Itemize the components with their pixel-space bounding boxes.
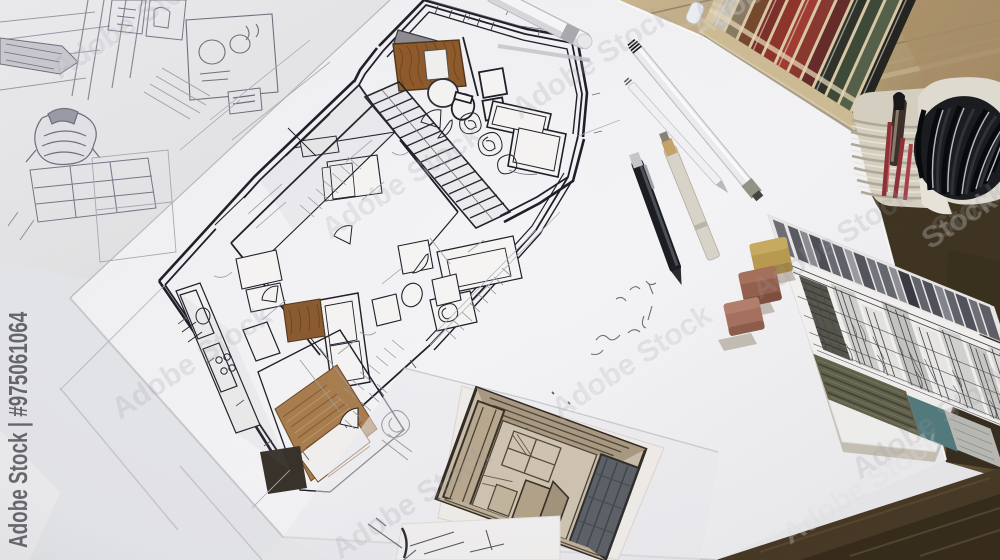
svg-text:Adobe Stock | #975061064: Adobe Stock | #975061064 xyxy=(3,311,33,548)
